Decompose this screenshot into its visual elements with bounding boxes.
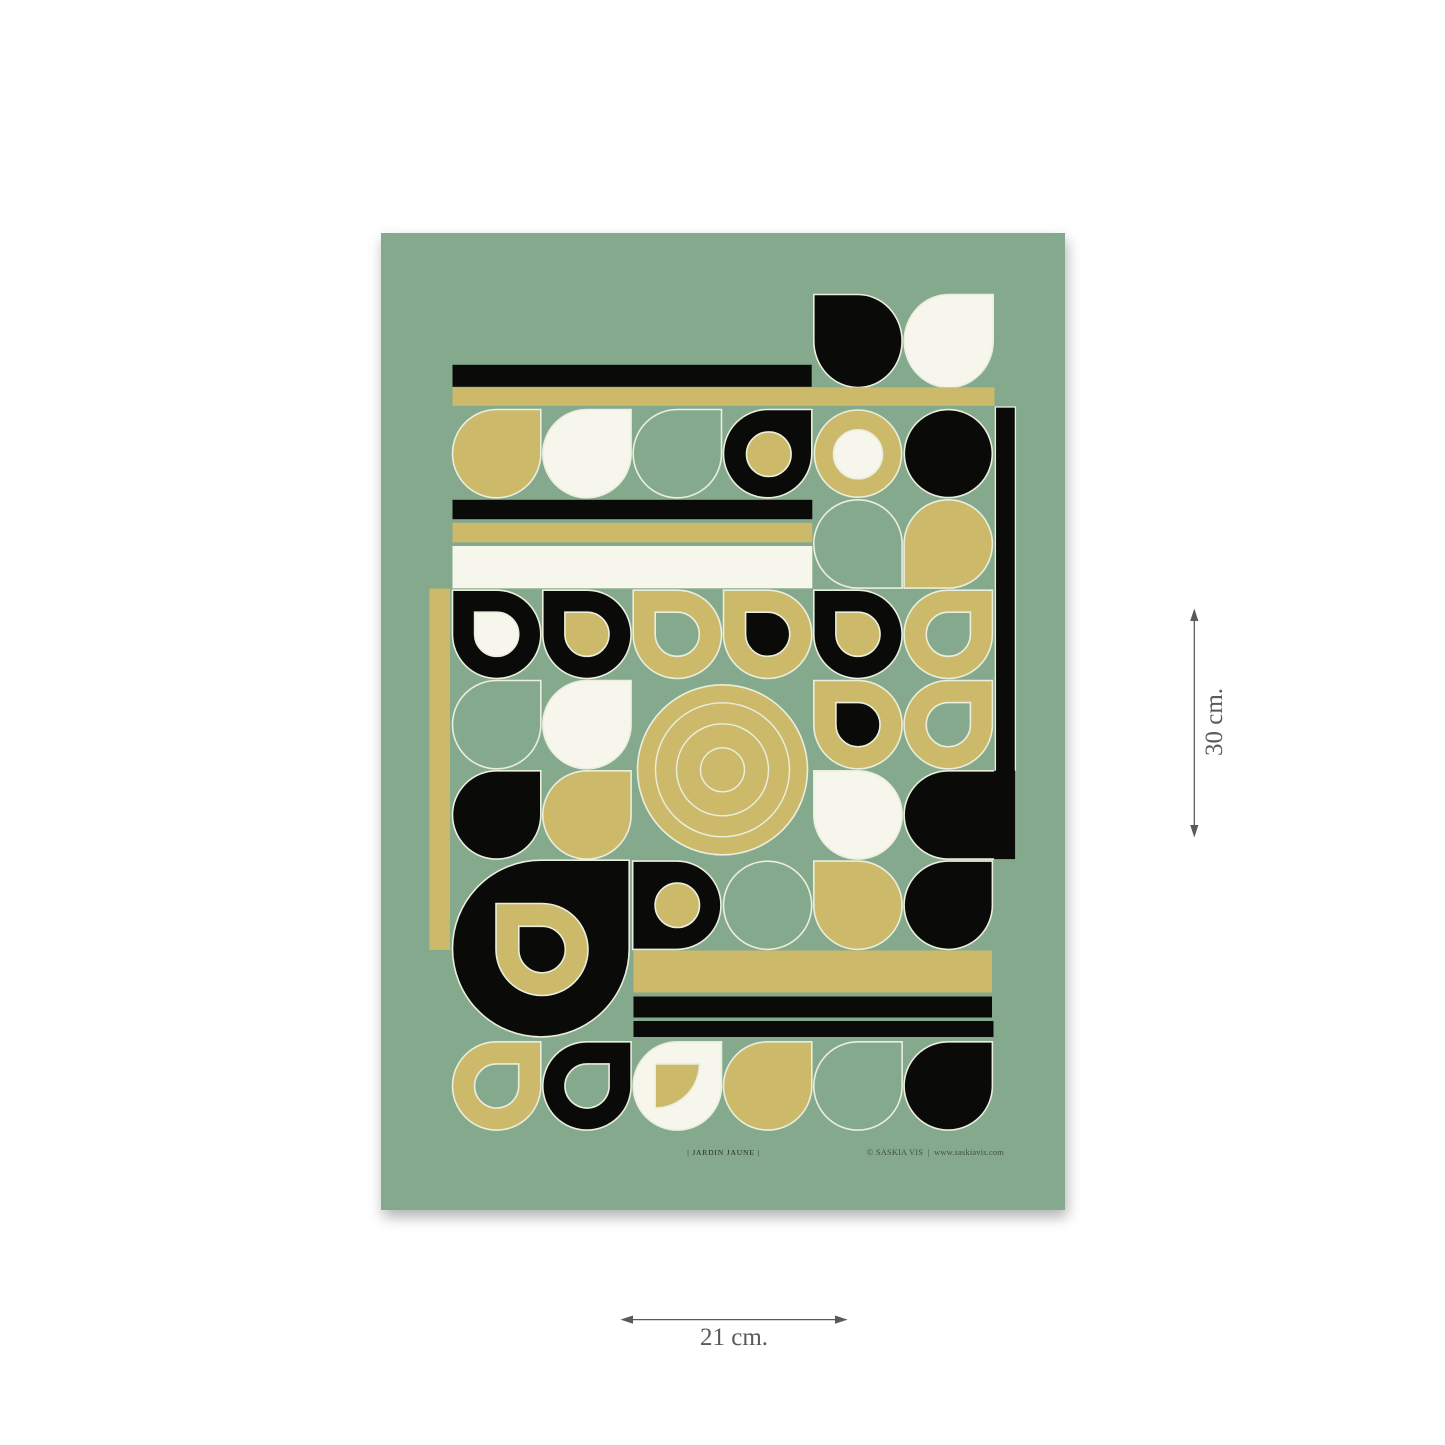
svg-text:| JARDIN JAUNE |: | JARDIN JAUNE | <box>687 1148 760 1157</box>
svg-text:21 cm.: 21 cm. <box>700 1324 768 1351</box>
svg-text:30 cm.: 30 cm. <box>1201 688 1228 756</box>
svg-text:© SASKIA VIS | www.saskiavis: © SASKIA VIS | www.saskiavis.com <box>867 1148 1004 1157</box>
